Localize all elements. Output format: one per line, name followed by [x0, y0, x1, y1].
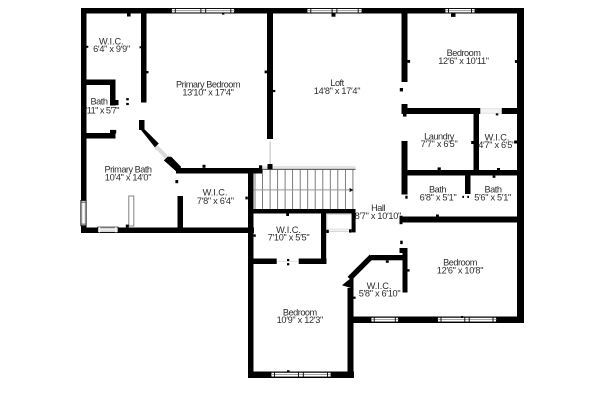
svg-text:6′4" x 9′9": 6′4" x 9′9" — [93, 44, 130, 54]
svg-text:5′8" x 6′10": 5′8" x 6′10" — [359, 289, 401, 299]
svg-text:12′6" x 10′11": 12′6" x 10′11" — [438, 56, 489, 66]
svg-text:10′4" x 14′0": 10′4" x 14′0" — [105, 172, 151, 182]
svg-text:10′9" x 12′3": 10′9" x 12′3" — [277, 315, 323, 325]
svg-text:5′6" x 5′1": 5′6" x 5′1" — [474, 193, 511, 203]
svg-text:6′8" x 5′1": 6′8" x 5′1" — [420, 193, 457, 203]
svg-text:8′7" x 10′10": 8′7" x 10′10" — [355, 211, 401, 221]
svg-text:7′7" x 6′5": 7′7" x 6′5" — [421, 139, 458, 149]
svg-text:13′10" x 17′4": 13′10" x 17′4" — [182, 88, 233, 98]
svg-text:7′10" x 5′5": 7′10" x 5′5" — [268, 233, 310, 243]
svg-text:7′8" x 6′4": 7′8" x 6′4" — [197, 196, 234, 206]
svg-text:12′6" x 10′8": 12′6" x 10′8" — [437, 266, 483, 276]
svg-text:5′11" x 5′7": 5′11" x 5′7" — [81, 105, 119, 115]
svg-text:14′8" x 17′4": 14′8" x 17′4" — [314, 86, 360, 96]
svg-text:4′7" x 6′5": 4′7" x 6′5" — [478, 140, 515, 150]
